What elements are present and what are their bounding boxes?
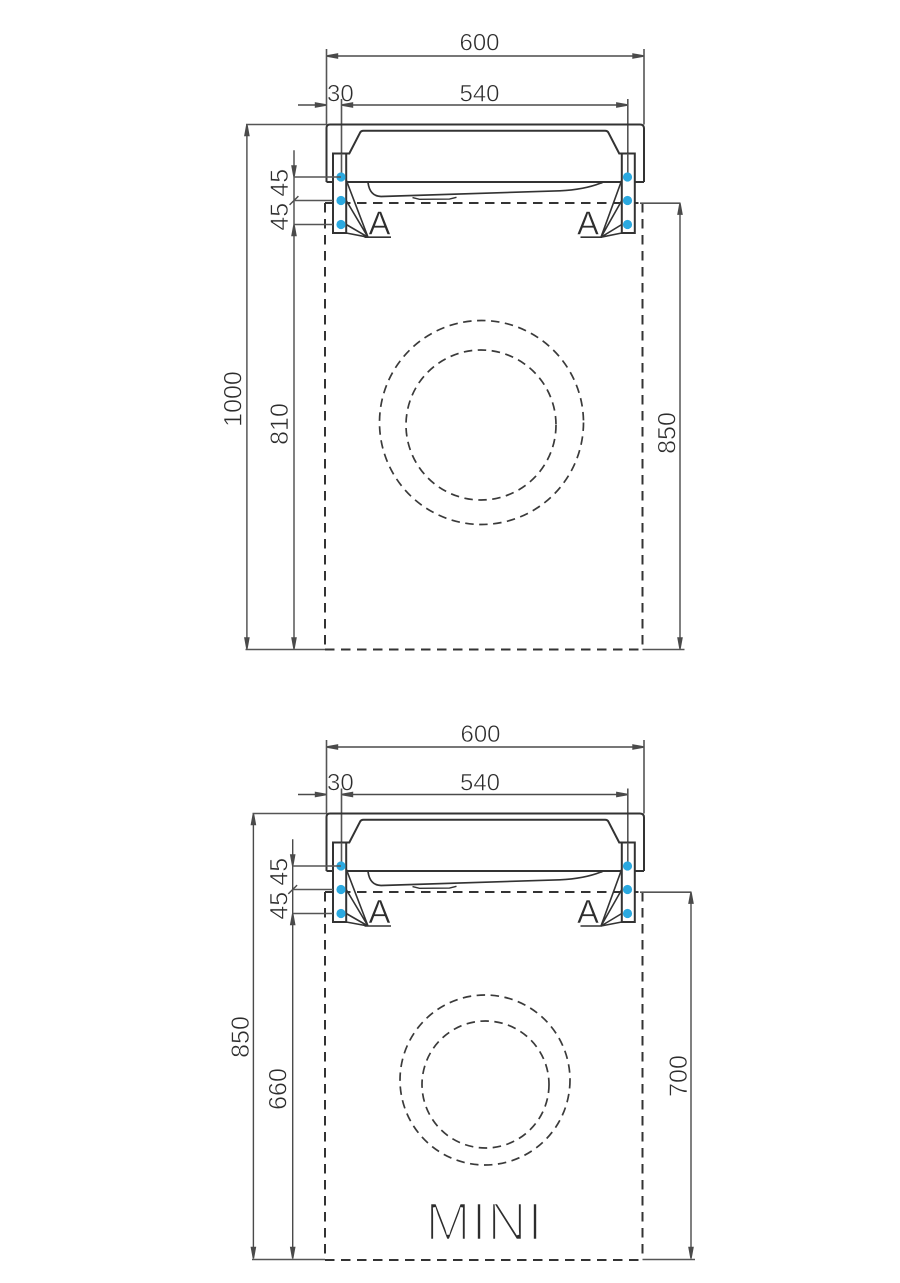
svg-text:810: 810	[266, 403, 294, 445]
svg-text:600: 600	[459, 30, 499, 57]
svg-text:850: 850	[227, 1016, 255, 1058]
svg-text:600: 600	[460, 721, 500, 748]
svg-text:700: 700	[665, 1055, 693, 1097]
svg-text:MINI: MINI	[426, 1192, 544, 1252]
svg-text:660: 660	[265, 1068, 293, 1110]
svg-text:1000: 1000	[220, 371, 248, 427]
svg-text:45: 45	[266, 203, 294, 231]
svg-text:A: A	[577, 893, 599, 930]
svg-text:45: 45	[266, 858, 294, 886]
svg-text:A: A	[368, 205, 390, 242]
svg-text:A: A	[368, 893, 390, 930]
svg-text:A: A	[577, 205, 599, 242]
svg-text:540: 540	[460, 770, 500, 797]
svg-text:45: 45	[266, 169, 294, 197]
svg-text:850: 850	[654, 412, 682, 454]
svg-text:45: 45	[266, 892, 294, 920]
svg-text:540: 540	[459, 81, 499, 108]
